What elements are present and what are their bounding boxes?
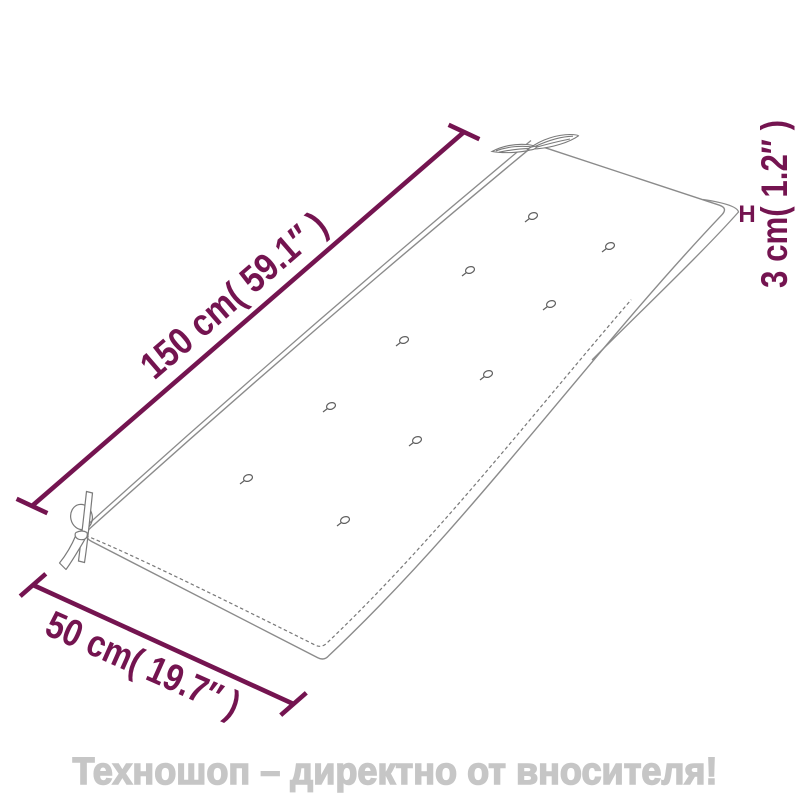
svg-text:3 cm( 1.2″ ): 3 cm( 1.2″ ) [754,120,795,288]
svg-text:Техношоп – директно от вносите: Техношоп – директно от вносителя! [73,751,718,793]
